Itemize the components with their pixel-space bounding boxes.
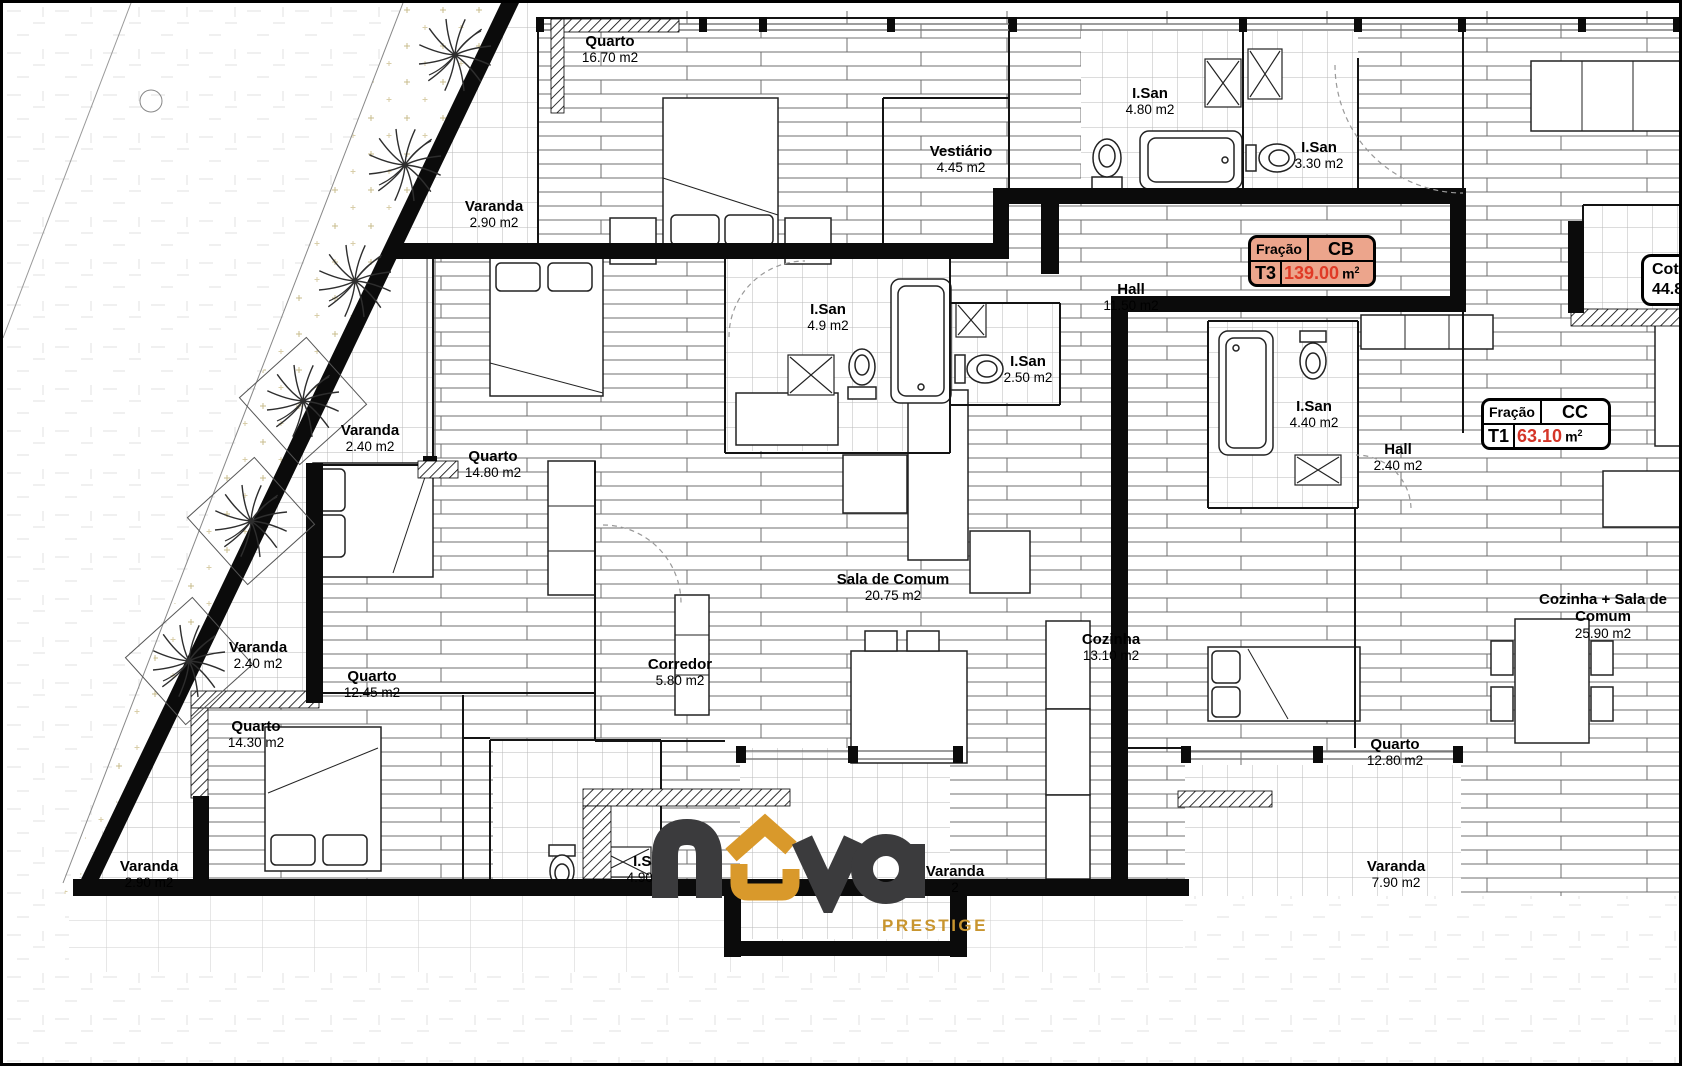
brand-tagline: PRESTIGE: [882, 916, 988, 936]
room-label-varanda-240-lower: Varanda2.40 m2: [229, 639, 287, 673]
logo-letter-n: [665, 832, 709, 898]
room-label-varanda-240-upper: Varanda2.40 m2: [341, 422, 399, 456]
room-label-vestiario: Vestiário4.45 m2: [930, 143, 993, 177]
corner-area-badge: Cot 44.8: [1641, 254, 1682, 306]
nova-logo: [643, 793, 1003, 918]
kitchen-table: [851, 631, 967, 763]
floor-plan-page: Quarto16.70 m2 Varanda2.90 m2 Vestiário4…: [0, 0, 1682, 1066]
fracao-cc-badge: Fração CC T1 63.10 m2: [1481, 398, 1611, 450]
room-label-sala-de-comum: Sala de Comum20.75 m2: [837, 571, 950, 605]
fracao-code: CB: [1309, 239, 1373, 260]
bed: [490, 258, 603, 396]
room-label-quarto-1245: Quarto12.45 m2: [344, 668, 400, 702]
room-label-isan-480: I.San4.80 m2: [1126, 85, 1175, 119]
room-label-quarto-1670: Quarto16.70 m2: [582, 33, 638, 67]
fracao-type: T3: [1251, 262, 1282, 284]
sofa: [1603, 471, 1682, 527]
room-label-quarto-1480: Quarto14.80 m2: [465, 448, 521, 482]
room-label-quarto-1430: Quarto14.30 m2: [228, 718, 284, 752]
logo-house-icon: [731, 825, 791, 892]
room-label-varanda-790: Varanda7.90 m2: [1367, 858, 1425, 892]
logo-letter-v: [802, 840, 854, 896]
room-label-isan-440: I.San4.40 m2: [1290, 398, 1339, 432]
room-label-isan-250: I.San2.50 m2: [1004, 353, 1053, 387]
room-label-hall-cc: Hall2.40 m2: [1374, 441, 1423, 475]
bed: [1208, 647, 1360, 721]
fracao-cb-badge: Fração CB T3 139.00 m2: [1248, 235, 1376, 287]
room-label-varanda-290-top: Varanda2.90 m2: [465, 198, 523, 232]
fracao-label: Fração: [1484, 401, 1542, 423]
logo-letter-a-bowl: [862, 845, 910, 893]
room-label-isan-49: I.San4.9 m2: [807, 301, 848, 335]
room-label-hall-cb: Hall11.50 m2: [1103, 281, 1158, 315]
fracao-area-value: 63.10: [1515, 426, 1562, 447]
fracao-type: T1: [1484, 425, 1515, 447]
room-label-isan-330: I.San3.30 m2: [1295, 139, 1344, 173]
room-label-corredor: Corredor5.80 m2: [648, 656, 712, 690]
room-label-cozinha: Cozinha13.10 m2: [1082, 631, 1140, 665]
fracao-label: Fração: [1251, 238, 1309, 260]
bed: [313, 463, 433, 577]
fracao-area-value: 139.00: [1282, 263, 1339, 284]
fracao-code: CC: [1542, 402, 1608, 423]
room-label-quarto-1280: Quarto12.80 m2: [1367, 736, 1423, 770]
room-label-cozinha-sala-comum: Cozinha + Sala de Comum25.90 m2: [1528, 591, 1678, 642]
room-label-varanda-290-bottom: Varanda2.90 m2: [120, 858, 178, 892]
